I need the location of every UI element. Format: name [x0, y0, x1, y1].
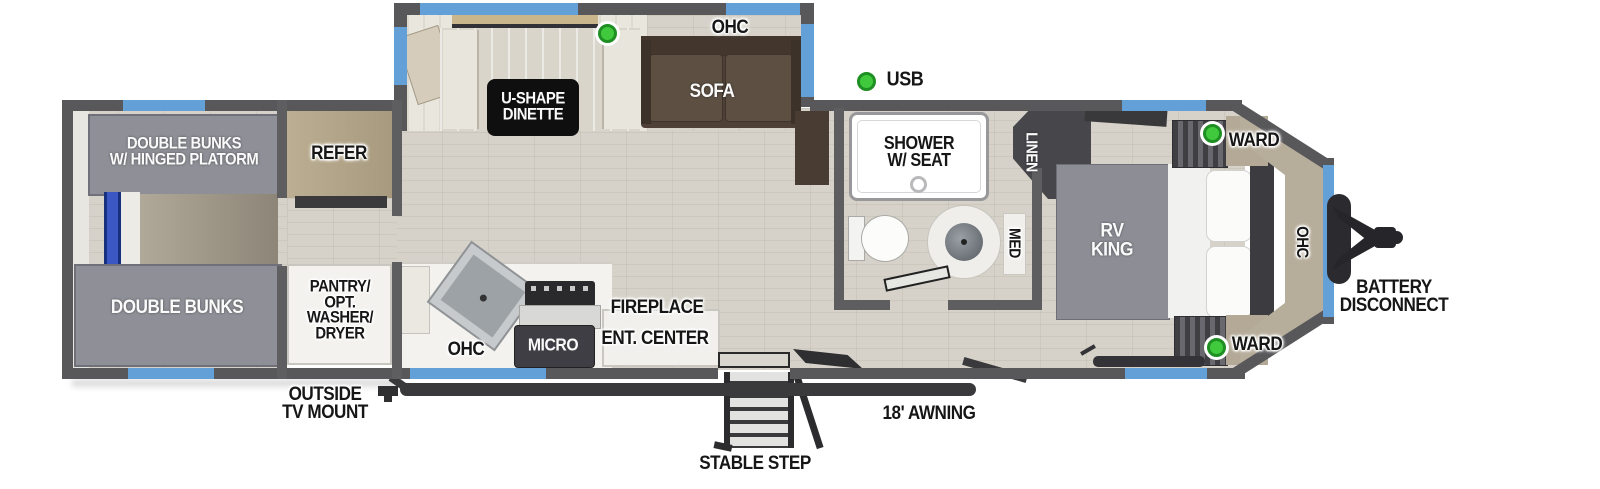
- window-slideout-top-right: [726, 3, 800, 15]
- window-bedroom-top: [1122, 100, 1206, 111]
- label-ent-center: ENT. CENTER: [601, 330, 708, 348]
- label-double-bunks: DOUBLE BUNKS: [111, 299, 243, 317]
- kitchen-wall-upper: [392, 100, 402, 216]
- sofa-end-table: [795, 111, 829, 185]
- label-u-shape-dinette: U-SHAPE DINETTE: [501, 91, 565, 122]
- label-rv-king: RV KING: [1091, 221, 1133, 258]
- sofa-arm-left: [641, 40, 651, 124]
- under-bunk-platform: [140, 194, 278, 266]
- sofa-back: [641, 36, 801, 56]
- bathroom-wall-bottom-right: [948, 300, 1042, 310]
- kitchen-cabinet: [398, 266, 430, 334]
- label-pantry: PANTRY/ OPT. WASHER/ DRYER: [307, 280, 373, 343]
- bunk-ladder-side: [121, 192, 140, 267]
- bunk-ladder: [104, 192, 121, 267]
- exterior-wall-rear-top: [62, 100, 402, 111]
- label-outside-tv-mount: OUTSIDE TV MOUNT: [282, 386, 368, 422]
- usb-port-indicator: [857, 72, 876, 91]
- ward-bottom-indicator: [1207, 338, 1226, 357]
- label-ward-top: WARD: [1229, 132, 1279, 150]
- bathroom-wall-bottom-left: [834, 300, 890, 310]
- sofa-cushion: [725, 54, 793, 122]
- label-micro: MICRO: [528, 337, 578, 354]
- label-ohc-slideout: OHC: [712, 19, 749, 37]
- bathroom-wall-right: [1032, 168, 1042, 310]
- label-battery-disconnect: BATTERY DISCONNECT: [1340, 279, 1449, 315]
- bunkroom-wall-upper: [277, 100, 287, 198]
- propane-cover: [1327, 194, 1351, 284]
- dinette-bench-left: [443, 30, 479, 129]
- entry-threshold: [718, 352, 790, 368]
- hitch-ball-socket: [1390, 231, 1403, 244]
- cooktop: [525, 281, 595, 307]
- refrigerator-base: [295, 196, 387, 208]
- window-rear-bottom: [128, 368, 214, 379]
- label-refer: REFER: [311, 145, 367, 163]
- bedroom-tv-bar: [1093, 356, 1205, 367]
- label-med: MED: [1006, 228, 1021, 258]
- label-shower: SHOWER W/ SEAT: [884, 135, 954, 169]
- shower-drain: [910, 176, 927, 193]
- label-sofa: SOFA: [690, 83, 735, 101]
- dinette-light-indicator: [598, 24, 617, 43]
- label-double-bunks-hinged: DOUBLE BUNKS W/ HINGED PLATORM: [110, 136, 259, 167]
- label-stable-step: STABLE STEP: [699, 455, 811, 473]
- awning-bar: [400, 383, 976, 396]
- bed-sheet: [1168, 164, 1210, 318]
- kitchen-wall-lower: [392, 262, 402, 379]
- window-slideout-right: [801, 24, 814, 97]
- window-slideout-left: [394, 27, 407, 85]
- exterior-wall-rear: [62, 100, 73, 379]
- dinette-bench-right: [602, 30, 640, 129]
- label-ohc-front: OHC: [1293, 226, 1309, 258]
- window-bedroom-bottom: [1125, 368, 1207, 379]
- pillow: [1206, 170, 1252, 242]
- label-usb: USB: [887, 71, 924, 90]
- bunkroom-wall-lower: [277, 266, 287, 379]
- label-ward-bottom: WARD: [1232, 336, 1282, 354]
- bathroom-wall-left: [834, 108, 844, 310]
- headboard: [1250, 158, 1274, 324]
- ward-top-indicator: [1203, 124, 1222, 143]
- window-rear-top: [123, 100, 205, 111]
- label-linen: LINEN: [1023, 132, 1038, 172]
- label-fireplace: FIREPLACE: [611, 299, 704, 317]
- toilet-bowl: [861, 215, 909, 262]
- rv-floorplan-diagram: DOUBLE BUNKS W/ HINGED PLATORM REFER DOU…: [0, 0, 1600, 489]
- label-awning: 18' AWNING: [882, 405, 975, 423]
- corridor-floor: [287, 198, 397, 266]
- window-kitchen-bottom: [410, 368, 546, 379]
- label-ohc-kitchen: OHC: [448, 341, 485, 359]
- tv-mount-bracket-arm: [384, 394, 392, 402]
- bath-sink-drain: [961, 239, 967, 245]
- pillow: [1206, 246, 1252, 318]
- window-slideout-top-left: [420, 3, 578, 15]
